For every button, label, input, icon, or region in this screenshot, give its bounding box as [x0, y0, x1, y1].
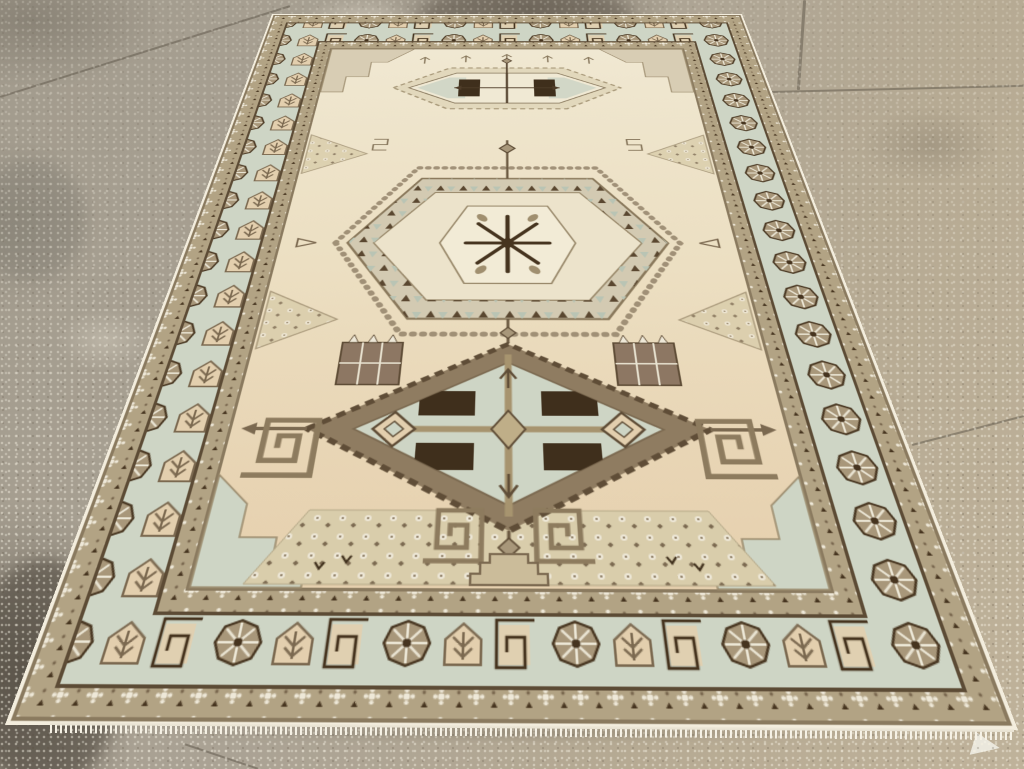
grout-line	[770, 85, 1024, 93]
grout-line	[184, 743, 261, 769]
grout-line	[797, 0, 806, 90]
photo-scene: A vintage cream, tan and brown geometric…	[0, 0, 1024, 769]
grout-line	[912, 415, 1024, 446]
floor-stain	[0, 160, 85, 280]
